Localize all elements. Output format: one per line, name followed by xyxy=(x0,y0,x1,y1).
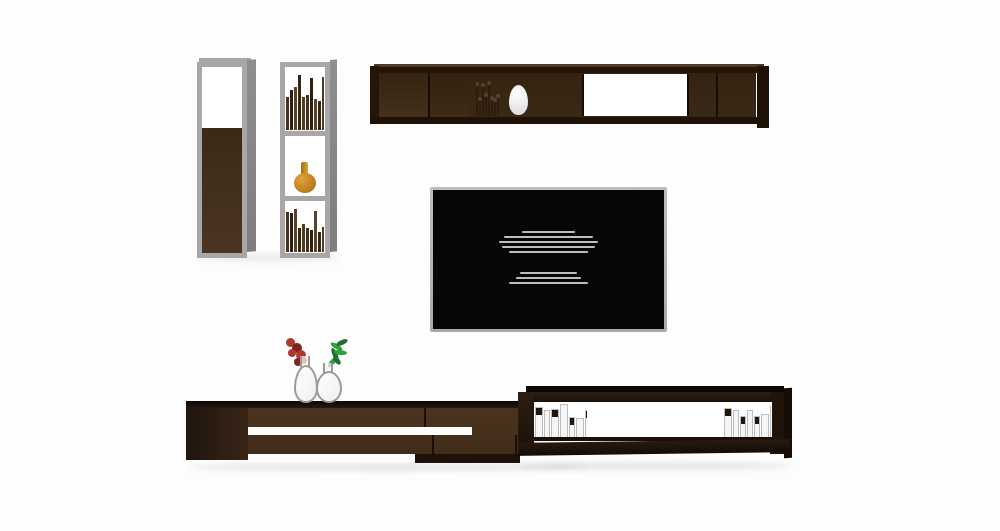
drawer-gap-stripe-upper xyxy=(248,427,472,435)
furniture-showcase-image xyxy=(0,0,1000,531)
drawer-divider-mid-1 xyxy=(432,435,434,454)
raised-top-band xyxy=(518,392,790,402)
wall-shelf-divider-2 xyxy=(716,73,718,117)
raised-bottom-band xyxy=(518,439,790,456)
tv-screen xyxy=(433,190,664,329)
bookshelf-top-books xyxy=(286,70,324,130)
wall-shelf-stick-books xyxy=(476,79,512,116)
wall-shelf-door-2 xyxy=(430,73,469,117)
glass-vase-right xyxy=(316,371,342,403)
bookshelf-frame xyxy=(280,62,330,258)
wall-shelf-white-panel xyxy=(582,74,689,116)
red-flower-3 xyxy=(288,349,296,357)
wall-shelf xyxy=(370,64,770,130)
raised-left-wall xyxy=(518,392,534,450)
bookshelf-divider-lower xyxy=(285,196,325,201)
stand-books-right xyxy=(724,403,771,439)
cabinet-glass-section xyxy=(202,67,242,128)
bookshelf-bottom-books xyxy=(286,203,324,252)
wall-shelf-body xyxy=(379,73,756,117)
stand-left-end-panel xyxy=(186,408,248,460)
cabinet-frame xyxy=(197,62,247,258)
tv xyxy=(430,187,667,332)
wall-shelf-left-cap xyxy=(370,66,379,122)
white-egg-vase xyxy=(509,85,528,115)
drawer-divider-mid-2 xyxy=(515,435,517,454)
tall-display-cabinet xyxy=(197,58,259,260)
tv-credits-paragraph-1 xyxy=(451,231,645,253)
glass-vase-left xyxy=(294,365,318,403)
tv-credits-paragraph-2 xyxy=(451,272,645,284)
wall-shelf-door-1 xyxy=(379,73,428,117)
stand-books-left xyxy=(535,403,587,439)
bookshelf-side-face xyxy=(330,59,337,252)
tv-stand-low xyxy=(186,398,520,468)
wall-shelf-bottom-rail xyxy=(370,117,768,124)
wall-shelf-right-cap xyxy=(757,66,769,128)
bookshelf-vase-cell xyxy=(285,136,325,196)
tall-bookshelf xyxy=(280,58,340,260)
decor-vase-group xyxy=(284,336,364,406)
raised-open-shelf xyxy=(534,402,772,440)
drawer-gap-stripe-lower xyxy=(248,454,415,462)
amber-vase-body xyxy=(294,173,316,193)
drawer-divider-top-1 xyxy=(424,408,426,427)
cabinet-wood-door xyxy=(202,128,242,253)
green-leaf-2 xyxy=(336,338,349,347)
cabinet-side-face xyxy=(247,59,256,252)
stand-plinth-right xyxy=(415,454,520,463)
tv-stand-raised xyxy=(518,386,790,468)
stand-drawer-front xyxy=(248,408,520,461)
